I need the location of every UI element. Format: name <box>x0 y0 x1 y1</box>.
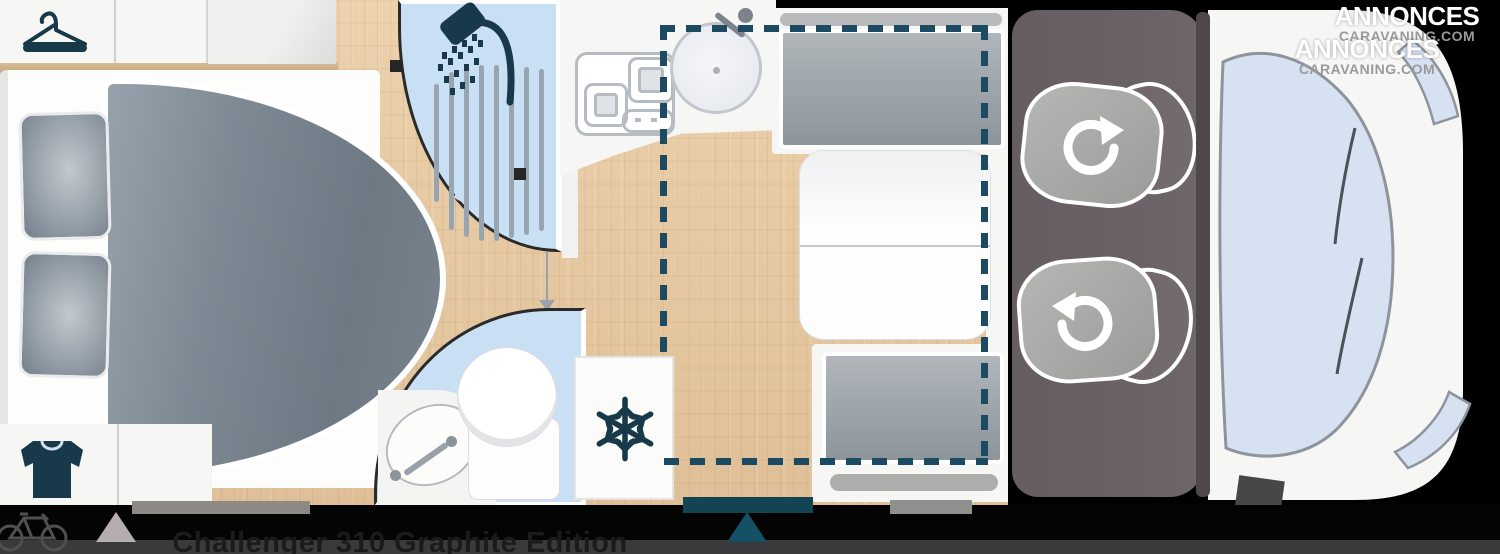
drop-down-bed-dashed-outline <box>981 25 988 465</box>
table-extension-seam <box>800 245 990 247</box>
entry-step-bar <box>683 497 813 513</box>
watermark-logo: ANNONCES CARAVANING.COM <box>1292 36 1442 76</box>
footer-model-title: Challenger 310 Graphite Edition <box>0 526 800 554</box>
motorhome-floorplan: ANNONCES CARAVANING.COM ANNONCES CARAVAN… <box>0 0 1500 554</box>
bench-base-strip <box>890 500 972 514</box>
overhead-cabinet <box>208 0 336 64</box>
door-line <box>546 252 548 302</box>
bed-pillow <box>18 251 111 379</box>
snowflake-fridge-icon <box>588 392 662 466</box>
shower-door-hinge <box>514 168 526 180</box>
shower-head-icon <box>408 2 534 114</box>
drop-down-bed-dashed-outline <box>660 25 988 32</box>
watermark-annonces: ANNONCES <box>1292 36 1442 62</box>
swivel-arrow-icon <box>1050 288 1120 358</box>
dinette-table <box>800 151 990 339</box>
bathroom-faucet-knob <box>446 436 457 447</box>
clothes-cabinet-divider <box>117 424 119 507</box>
toilet-icon <box>458 348 556 446</box>
hanger-icon <box>18 6 90 62</box>
bed-base-strip <box>132 501 310 514</box>
bed-pillow <box>18 111 111 241</box>
swivel-arrow-icon <box>1056 112 1126 182</box>
wardrobe-divider <box>114 0 116 63</box>
bathroom-faucet-knob <box>390 470 401 481</box>
watermark-annonces: ANNONCES <box>1332 3 1482 29</box>
watermark-caravaning: CARAVANING.COM <box>1292 62 1442 76</box>
drop-down-bed-dashed-outline <box>664 458 988 465</box>
tshirt-icon <box>20 436 84 502</box>
kitchen-faucet-knob <box>738 8 753 23</box>
bench-seat-cushion <box>822 352 1004 464</box>
drop-down-bed-dashed-outline <box>660 25 667 356</box>
kitchen-sink-icon <box>670 22 762 114</box>
dashboard-strip <box>1196 12 1210 497</box>
bench-seat-cushion <box>779 29 1005 149</box>
bench-bottom-bar <box>830 474 998 491</box>
shower-water-stripe <box>539 69 544 231</box>
shower-door-hinge <box>390 60 402 72</box>
